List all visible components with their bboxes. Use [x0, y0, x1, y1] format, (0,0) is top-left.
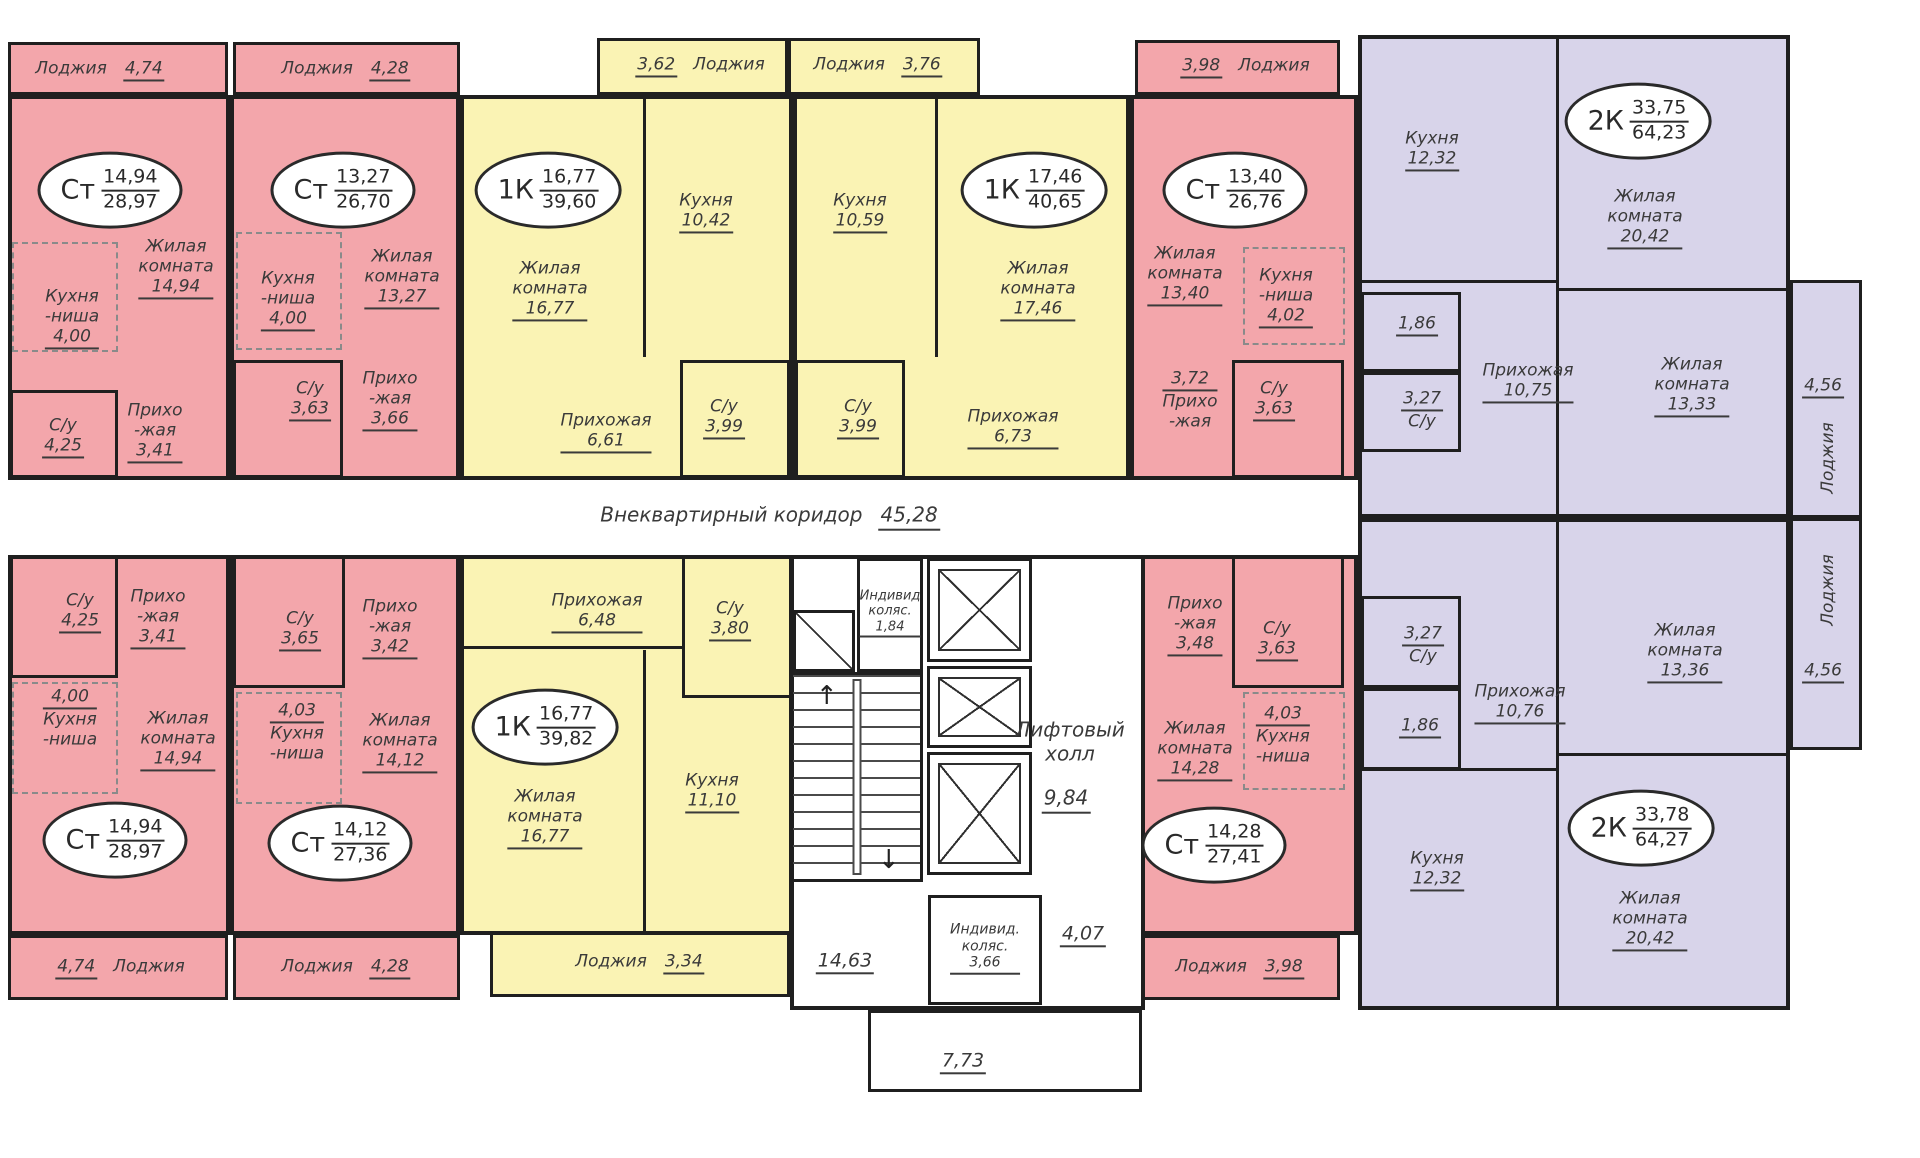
unit-areas: 16,7739,82 — [537, 704, 595, 751]
room-label: 4,03Кухня-ниша — [270, 700, 324, 763]
room-divider-wall — [1362, 768, 1558, 771]
elevator — [927, 752, 1032, 875]
unit-areas: 13,2726,70 — [334, 167, 392, 214]
unit-label-oval: 1К17,4640,65 — [961, 152, 1108, 229]
unit-label-oval: Ст13,4026,76 — [1163, 152, 1308, 229]
floor-plan: Лоджия4,74Лоджия4,283,62ЛоджияЛоджия3,76… — [0, 0, 1920, 1158]
room-label: С/у3,99 — [703, 396, 745, 439]
loggia-label: Лоджия4,74 — [35, 58, 164, 81]
loggia-label: Лоджия — [1818, 554, 1838, 626]
room-label: Прихо-жая3,41 — [127, 400, 182, 463]
room-label: Прихо-жая3,42 — [362, 596, 417, 659]
unit-type: 2К — [1588, 106, 1624, 137]
room-label: Прихо-жая3,66 — [362, 368, 417, 431]
room-label: Прихо-жая3,41 — [130, 586, 185, 649]
elevator-cross-icon — [938, 763, 1021, 864]
room-label: Кухня-ниша4,02 — [1259, 265, 1313, 328]
room-label: Жилаякомната14,28 — [1157, 718, 1232, 781]
room-label: 4,00Кухня-ниша — [43, 686, 97, 749]
room-label: С/у3,63 — [1256, 618, 1298, 661]
loggia-area-label: 4,56 — [1802, 660, 1844, 683]
unit-type: Ст — [291, 828, 326, 859]
room-label: Жилаякомната16,77 — [512, 258, 587, 321]
room-label: С/у3,65 — [279, 608, 321, 651]
unit-type: 1К — [498, 175, 534, 206]
unit-areas: 17,4640,65 — [1026, 167, 1084, 214]
room-label: Кухня11,10 — [685, 770, 739, 813]
unit-label-oval: 2К33,7864,27 — [1568, 790, 1715, 867]
room-label: Жилаякомната14,94 — [138, 236, 213, 299]
room-label: Прихожая10,75 — [1482, 360, 1573, 403]
room-divider-wall — [643, 99, 646, 357]
unit-areas: 14,1227,36 — [331, 820, 389, 867]
loggia-label: Лоджия3,76 — [813, 54, 942, 77]
unit-label-oval: 1К16,7739,82 — [472, 689, 619, 766]
room-divider-wall — [460, 646, 685, 649]
elevator — [927, 558, 1032, 662]
stroller-room-label: Индивидколяс.1,84 — [860, 589, 921, 638]
room-label: С/у4,25 — [42, 415, 84, 458]
room-label: Жилаякомната13,40 — [1147, 243, 1222, 306]
loggia-label: Лоджия — [1818, 422, 1838, 494]
room-label: Прихожая10,76 — [1474, 681, 1565, 724]
loggia-label: Лоджия3,98 — [1175, 956, 1304, 979]
loggia-label: Лоджия4,28 — [281, 58, 410, 81]
ventilation-shaft — [793, 610, 855, 672]
unit-type: Ст — [61, 175, 96, 206]
loggia-area-label: 4,56 — [1802, 375, 1844, 398]
unit-areas: 33,7564,23 — [1630, 98, 1688, 145]
unit-label-oval: Ст14,9428,97 — [43, 802, 188, 879]
vestibule-box — [868, 1010, 1142, 1092]
loggia-label: Лоджия3,34 — [575, 951, 704, 974]
room-label: Прихожая6,61 — [560, 410, 651, 453]
room-label: Жилаякомната20,42 — [1612, 888, 1687, 951]
room-label: Жилаякомната20,42 — [1607, 186, 1682, 249]
loggia-label: 3,98Лоджия — [1180, 55, 1309, 78]
stairs — [790, 672, 923, 882]
room-label: Кухня-ниша4,00 — [45, 286, 99, 349]
room-label: Жилаякомната17,46 — [1000, 258, 1075, 321]
room-label: Прихо-жая3,48 — [1167, 593, 1222, 656]
loggia-label: 3,62Лоджия — [635, 54, 764, 77]
room-label: Жилаякомната13,33 — [1654, 354, 1729, 417]
room-divider-wall — [935, 99, 938, 357]
unit-areas: 14,9428,97 — [106, 817, 164, 864]
room-divider-wall — [1556, 39, 1559, 518]
room-label: Кухня12,32 — [1410, 848, 1464, 891]
elevator-cross-icon — [938, 677, 1021, 737]
room-label: Кухня-ниша4,00 — [261, 268, 315, 331]
room-label: Кухня10,59 — [833, 190, 887, 233]
elevator-cross-icon — [938, 569, 1021, 651]
loggia-label: 4,74Лоджия — [55, 956, 184, 979]
room-label: С/у3,63 — [289, 378, 331, 421]
room-label: 3,72Прихо-жая — [1162, 368, 1217, 431]
unit-type: Ст — [294, 175, 329, 206]
unit-label-oval: Ст14,2827,41 — [1142, 807, 1287, 884]
room-label: Кухня12,32 — [1405, 128, 1459, 171]
room-label: Жилаякомната14,12 — [362, 710, 437, 773]
room-label: С/у3,80 — [709, 598, 751, 641]
room-label: 1,86 — [1399, 715, 1441, 738]
unit-areas: 14,2827,41 — [1205, 822, 1263, 869]
lift-hall-area-label: 9,84 — [1042, 787, 1091, 814]
room-label: Жилаякомната13,36 — [1647, 620, 1722, 683]
unit-type: Ст — [66, 825, 101, 856]
corridor-label: Внеквартирный коридор45,28 — [600, 504, 940, 531]
room-label: Жилаякомната16,77 — [507, 786, 582, 849]
room-divider-wall — [1558, 753, 1790, 756]
room-label: 3,27С/у — [1402, 623, 1444, 666]
loggia-label: Лоджия4,28 — [281, 956, 410, 979]
unit-type: Ст — [1165, 830, 1200, 861]
unit-areas: 14,9428,97 — [101, 167, 159, 214]
room-label: С/у3,99 — [837, 396, 879, 439]
room-label: 4,03Кухня-ниша — [1256, 703, 1310, 766]
unit-label-oval: 1К16,7739,60 — [475, 152, 622, 229]
unit-label-oval: Ст14,9428,97 — [38, 152, 183, 229]
room-label: 1,86 — [1396, 313, 1438, 336]
room-label: Прихожая6,73 — [967, 406, 1058, 449]
room-label: 3,27С/у — [1401, 388, 1443, 431]
room-label: Жилаякомната13,27 — [364, 246, 439, 309]
room-label: Жилаякомната14,94 — [140, 708, 215, 771]
room-divider-wall — [643, 650, 646, 935]
unit-type: 1К — [495, 712, 531, 743]
room-label: Кухня10,42 — [679, 190, 733, 233]
unit-areas: 16,7739,60 — [540, 167, 598, 214]
unit-label-oval: Ст14,1227,36 — [268, 805, 413, 882]
unit-areas: 13,4026,76 — [1226, 167, 1284, 214]
unit-type: 1К — [984, 175, 1020, 206]
room-label: С/у4,25 — [59, 590, 101, 633]
stair-area-label: 14,63 — [816, 949, 874, 974]
room-divider-wall — [1362, 280, 1558, 283]
lobby-area-label: 4,07 — [1060, 922, 1106, 947]
unit-type: Ст — [1186, 175, 1221, 206]
unit-areas: 33,7864,27 — [1633, 805, 1691, 852]
lift-hall-label: Лифтовыйхолл — [1015, 718, 1125, 765]
unit-type: 2К — [1591, 813, 1627, 844]
stairs-stringer — [852, 679, 861, 875]
room-divider-wall — [1556, 518, 1559, 1006]
room-label: С/у3,63 — [1253, 378, 1295, 421]
room-label: Прихожая6,48 — [551, 590, 642, 633]
unit-label-oval: 2К33,7564,23 — [1565, 83, 1712, 160]
stroller-room-label: Индивид.коляс.3,66 — [950, 922, 1020, 975]
vestibule-area-label: 7,73 — [940, 1049, 986, 1074]
unit-label-oval: Ст13,2726,70 — [271, 152, 416, 229]
room-divider-wall — [1558, 288, 1790, 291]
